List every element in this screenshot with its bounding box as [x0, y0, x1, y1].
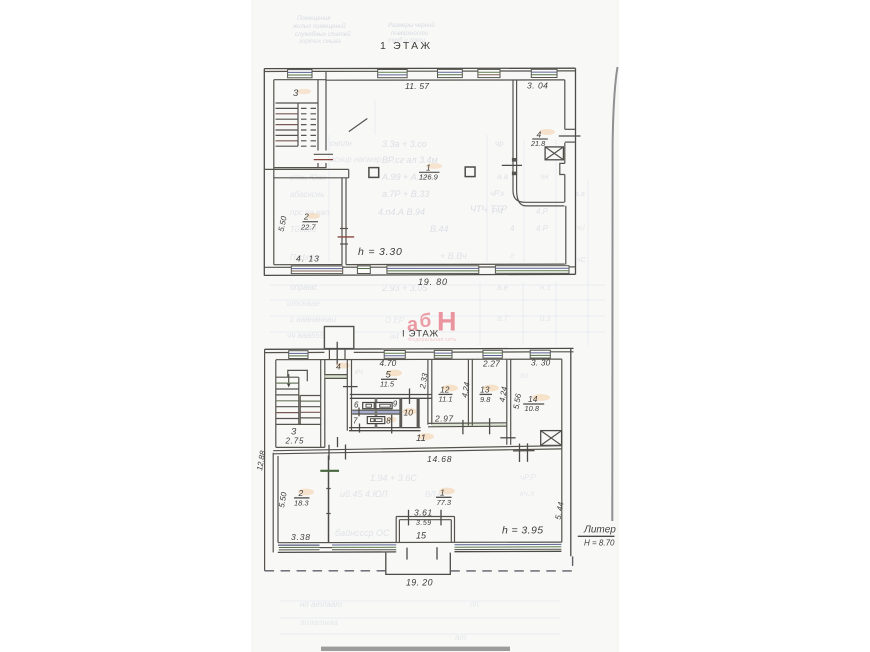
svg-text:Н: Н: [437, 307, 457, 337]
svg-text:и.з: и.з: [540, 314, 551, 323]
svg-text:а.а: а.а: [575, 191, 585, 198]
svg-text:4.Р: 4.Р: [536, 207, 549, 216]
svg-text:опрамс: опрамс: [290, 283, 317, 292]
svg-text:байнссср ОС: байнссср ОС: [335, 528, 390, 538]
svg-text:служебных статей: служебных статей: [295, 31, 351, 38]
svg-text:а.е: а.е: [497, 283, 509, 292]
svg-text:13: 13: [480, 385, 490, 395]
svg-text:3.61: 3.61: [414, 508, 433, 518]
svg-text:ЧТЧ ТТР: ЧТЧ ТТР: [470, 204, 507, 214]
svg-text:+ В.Вч: + В.Вч: [440, 251, 467, 261]
svg-text:6: 6: [354, 401, 359, 410]
svg-text:4: 4: [537, 130, 542, 140]
svg-text:4: 4: [336, 362, 341, 372]
svg-text:В.44: В.44: [430, 224, 449, 234]
svg-text:4.70: 4.70: [380, 358, 397, 368]
svg-text:а.7: а.7: [497, 314, 509, 323]
svg-text:1.94 + 3.6С: 1.94 + 3.6С: [370, 473, 417, 483]
svg-text:1: 1: [440, 488, 445, 498]
svg-text:чр: чр: [495, 139, 504, 148]
svg-text:чн: чн: [540, 172, 549, 181]
svg-text:1 ЭТАЖ: 1 ЭТАЖ: [380, 40, 432, 52]
svg-text:Размеры черной: Размеры черной: [388, 22, 435, 29]
svg-text:яз: яз: [519, 371, 528, 380]
svg-text:4.Р: 4.Р: [536, 224, 549, 233]
svg-text:лплатнаа: лплатнаа: [299, 618, 338, 627]
svg-text:11.1: 11.1: [439, 395, 453, 404]
svg-text:3: 3: [293, 88, 299, 99]
svg-text:h = 3.95: h = 3.95: [502, 525, 543, 537]
svg-text:3.38: 3.38: [291, 532, 311, 542]
svg-text:ий.45 4.ЮЛ: ий.45 4.ЮЛ: [340, 489, 388, 499]
svg-text:19. 80: 19. 80: [418, 277, 448, 287]
svg-text:н.з: н.з: [540, 283, 551, 292]
svg-text:кч: кч: [355, 367, 363, 376]
svg-text:г: г: [510, 251, 514, 260]
svg-text:4.п4.А В.94: 4.п4.А В.94: [378, 207, 425, 217]
svg-text:О ЕР: О ЕР: [385, 316, 405, 325]
svg-text:поверхности: поверхности: [391, 31, 429, 37]
svg-text:абаснснь: абаснснь: [290, 190, 324, 199]
svg-text:14: 14: [528, 394, 538, 404]
svg-text:8: 8: [386, 417, 391, 426]
svg-text:2.27: 2.27: [482, 359, 500, 369]
svg-text:2: 2: [298, 488, 304, 498]
svg-text:12: 12: [440, 385, 450, 395]
svg-text:14.68: 14.68: [427, 454, 452, 464]
svg-text:77.3: 77.3: [437, 498, 452, 507]
svg-text:Литер: Литер: [583, 525, 616, 536]
svg-text:126.9: 126.9: [419, 173, 439, 182]
svg-text:кч.л: кч.л: [520, 489, 535, 498]
svg-text:а.7Р + В.33: а.7Р + В.33: [382, 189, 429, 199]
svg-text:жилых помещений: жилых помещений: [292, 23, 346, 30]
svg-text:3. 04: 3. 04: [527, 81, 548, 91]
svg-text:15: 15: [416, 531, 427, 541]
svg-text:11.5: 11.5: [380, 380, 395, 389]
svg-text:I ЭТАЖ: I ЭТАЖ: [402, 329, 439, 340]
svg-text:1: 1: [426, 163, 431, 173]
svg-text:H = 8.70: H = 8.70: [584, 539, 615, 548]
svg-text:горячих смыва: горячих смыва: [299, 39, 341, 45]
svg-text:4: 4: [510, 224, 515, 233]
svg-text:21.8: 21.8: [530, 139, 546, 148]
svg-text:9: 9: [393, 400, 398, 409]
svg-text:чР.х: чР.х: [490, 189, 505, 198]
svg-text:10.8: 10.8: [525, 404, 540, 413]
svg-text:11. 57: 11. 57: [405, 81, 429, 91]
svg-text:h = 3.30: h = 3.30: [358, 246, 403, 258]
svg-text:снплн: снплн: [330, 139, 352, 148]
svg-text:9.8: 9.8: [480, 395, 491, 404]
svg-text:аснир напмар: аснир напмар: [330, 155, 382, 164]
svg-text:2.75: 2.75: [285, 437, 305, 446]
svg-text:а4: а4: [390, 332, 399, 341]
svg-text:22.7: 22.7: [300, 223, 316, 232]
svg-text:11: 11: [416, 433, 426, 444]
svg-text:7: 7: [353, 417, 358, 426]
svg-text:3.59: 3.59: [416, 520, 432, 527]
svg-text:2: 2: [303, 212, 309, 222]
svg-text:19. 20: 19. 20: [406, 578, 433, 588]
svg-text:3.3а + 3.со: 3.3а + 3.со: [382, 139, 427, 149]
svg-text:3. 30: 3. 30: [531, 358, 551, 368]
svg-text:4. 13: 4. 13: [296, 254, 320, 264]
svg-text:2.97: 2.97: [434, 414, 454, 424]
svg-text:а.а: а.а: [497, 172, 509, 181]
svg-text:ч./: ч./: [577, 225, 586, 232]
svg-text:чС: чС: [577, 257, 587, 264]
svg-text:10: 10: [404, 408, 414, 418]
svg-text:18.3: 18.3: [294, 499, 309, 508]
svg-text:Помещения: Помещения: [297, 16, 331, 22]
svg-text:чР.Р: чР.Р: [520, 473, 536, 482]
